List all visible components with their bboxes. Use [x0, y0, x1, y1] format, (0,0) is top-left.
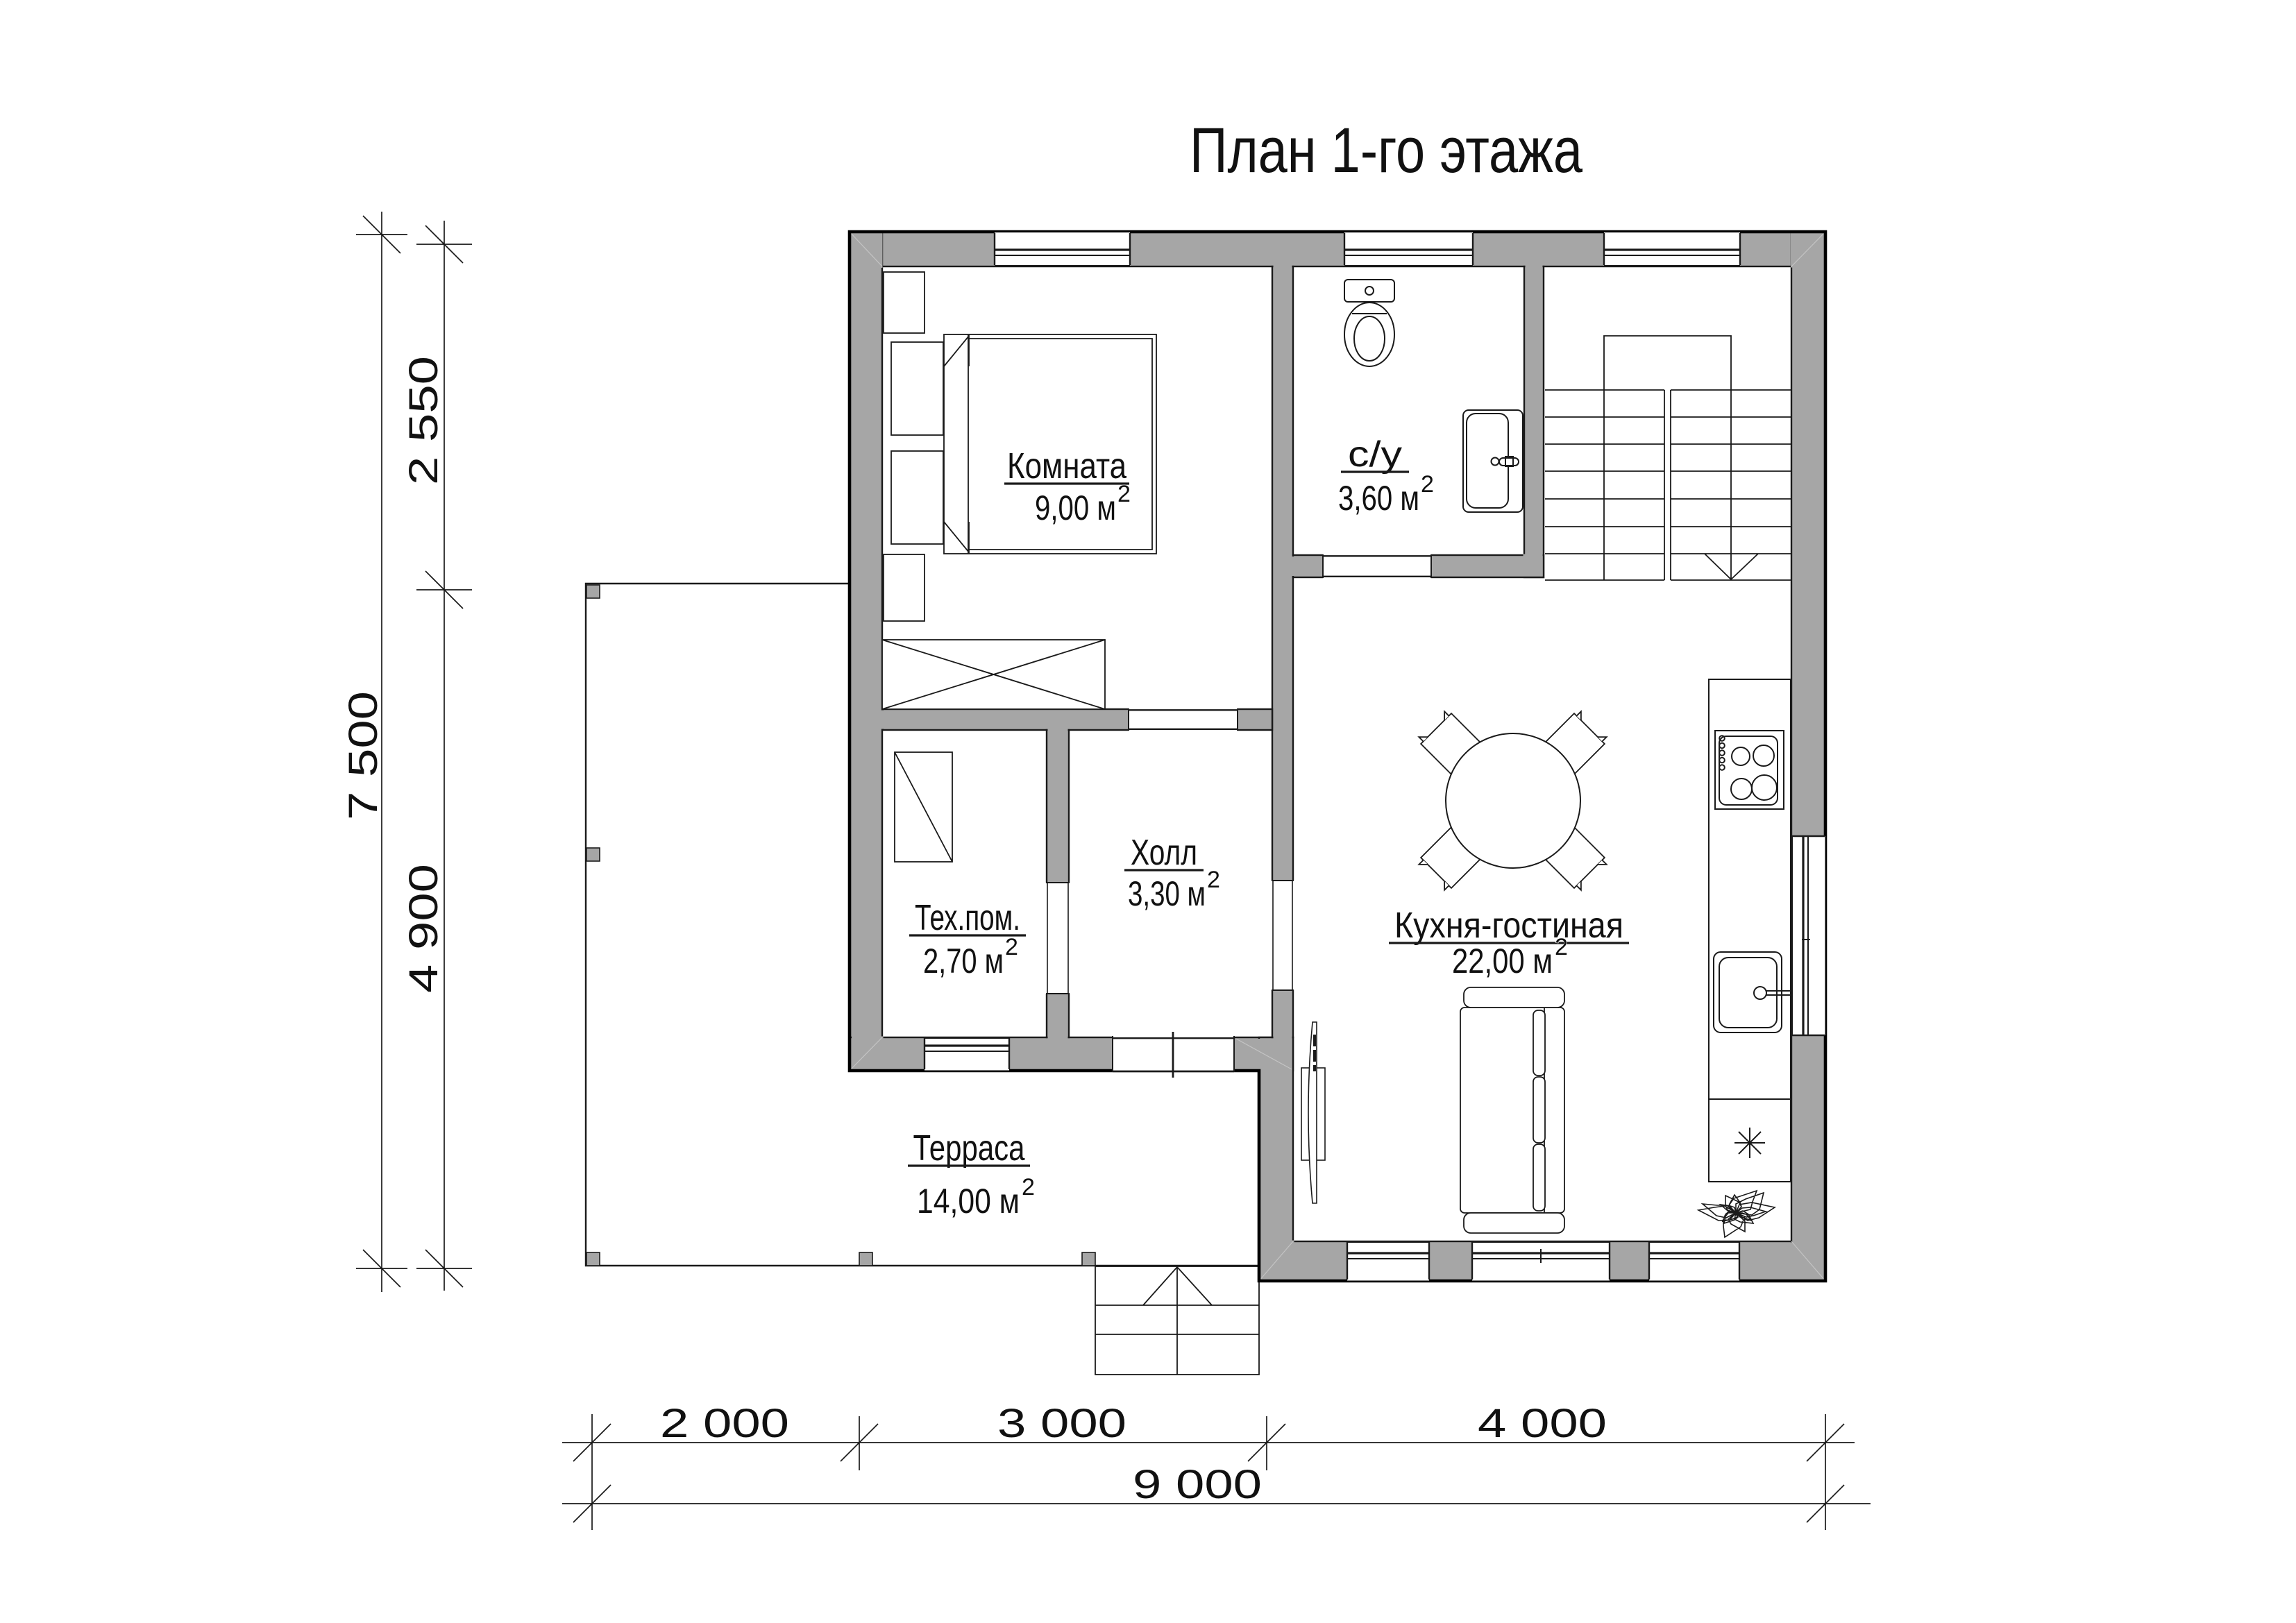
svg-text:2 550: 2 550 — [401, 356, 446, 485]
svg-text:Терраса: Терраса — [913, 1128, 1025, 1169]
svg-text:Тех.пом.: Тех.пом. — [915, 898, 1020, 938]
svg-text:План 1-го этажа: План 1-го этажа — [1190, 115, 1583, 186]
svg-text:2: 2 — [1555, 934, 1568, 960]
svg-text:2: 2 — [1117, 481, 1131, 507]
svg-text:4 900: 4 900 — [401, 864, 446, 993]
svg-text:9,00 м: 9,00 м — [1035, 488, 1116, 527]
svg-text:Холл: Холл — [1131, 833, 1197, 873]
svg-text:9 000: 9 000 — [1133, 1462, 1262, 1507]
svg-text:3,30 м: 3,30 м — [1128, 874, 1206, 913]
svg-text:7 500: 7 500 — [341, 691, 386, 820]
svg-text:2 000: 2 000 — [660, 1401, 789, 1446]
svg-text:3 000: 3 000 — [997, 1401, 1126, 1446]
svg-text:14,00 м: 14,00 м — [917, 1182, 1020, 1221]
svg-text:Кухня-гостиная: Кухня-гостиная — [1394, 906, 1623, 946]
svg-text:2,70 м: 2,70 м — [923, 942, 1004, 980]
svg-text:2: 2 — [1005, 934, 1018, 960]
svg-text:22,00 м: 22,00 м — [1452, 942, 1553, 980]
svg-text:3,60 м: 3,60 м — [1338, 479, 1419, 518]
svg-text:2: 2 — [1022, 1174, 1035, 1200]
svg-text:4 000: 4 000 — [1478, 1401, 1607, 1446]
svg-text:2: 2 — [1421, 471, 1434, 498]
svg-text:Комната: Комната — [1007, 446, 1126, 486]
svg-text:с/у: с/у — [1348, 434, 1402, 475]
svg-text:2: 2 — [1207, 867, 1220, 893]
